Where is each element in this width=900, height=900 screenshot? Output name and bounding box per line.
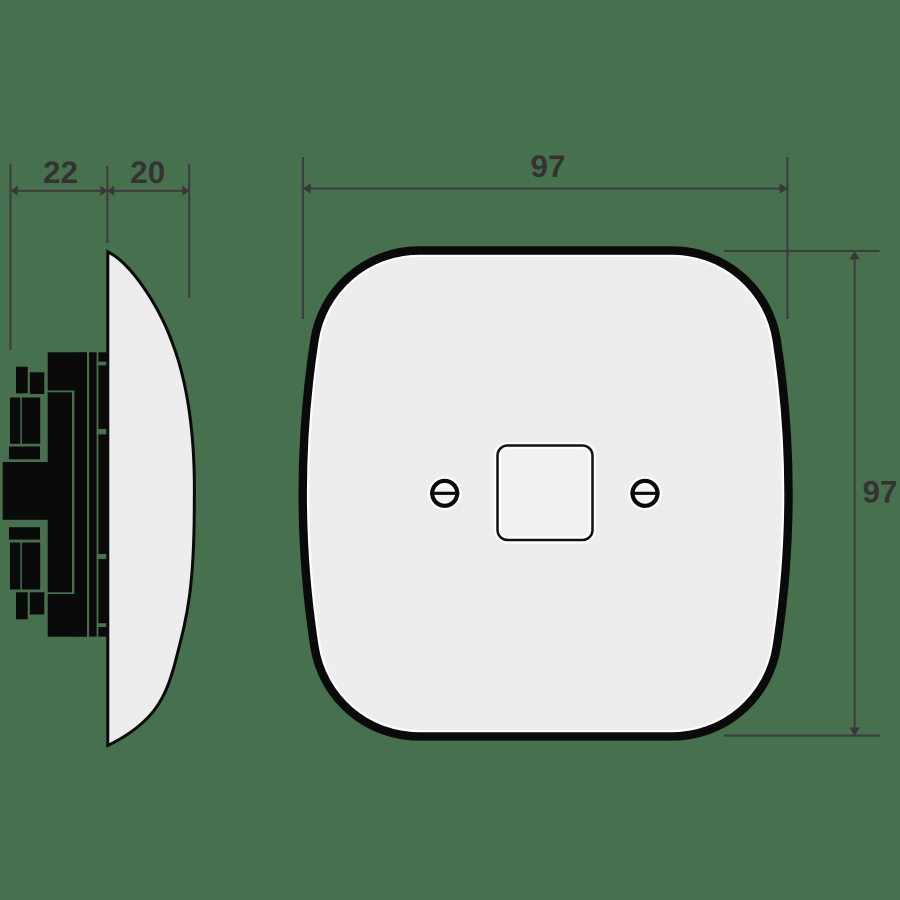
svg-text:20: 20 <box>130 154 165 190</box>
svg-text:97: 97 <box>862 473 897 509</box>
svg-text:97: 97 <box>530 148 565 184</box>
svg-text:22: 22 <box>43 154 78 190</box>
